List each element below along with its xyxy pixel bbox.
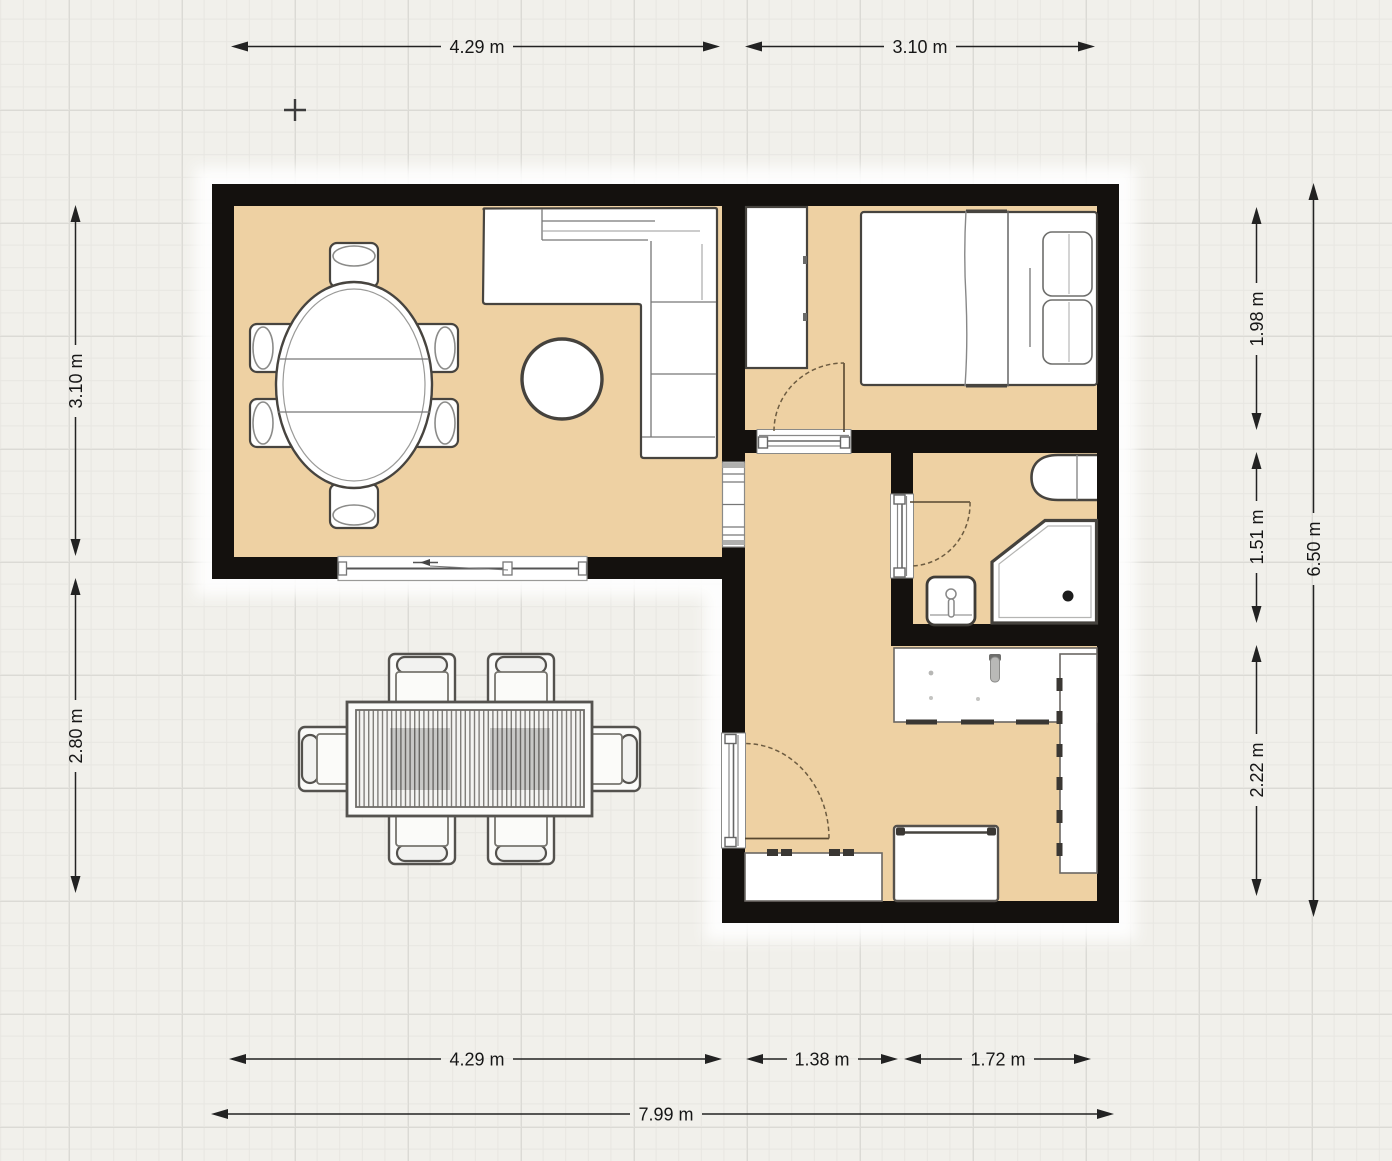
svg-text:6.50 m: 6.50 m [1304,521,1324,576]
svg-text:7.99 m: 7.99 m [638,1105,693,1125]
svg-text:3.10 m: 3.10 m [66,353,86,408]
svg-text:2.80 m: 2.80 m [66,708,86,763]
svg-text:4.29 m: 4.29 m [449,1050,504,1070]
svg-text:1.38 m: 1.38 m [794,1050,849,1070]
svg-text:2.22 m: 2.22 m [1247,742,1267,797]
svg-text:3.10 m: 3.10 m [892,37,947,57]
svg-text:4.29 m: 4.29 m [449,37,504,57]
svg-text:1.98 m: 1.98 m [1247,291,1267,346]
svg-text:1.72 m: 1.72 m [970,1050,1025,1070]
svg-text:1.51 m: 1.51 m [1247,509,1267,564]
